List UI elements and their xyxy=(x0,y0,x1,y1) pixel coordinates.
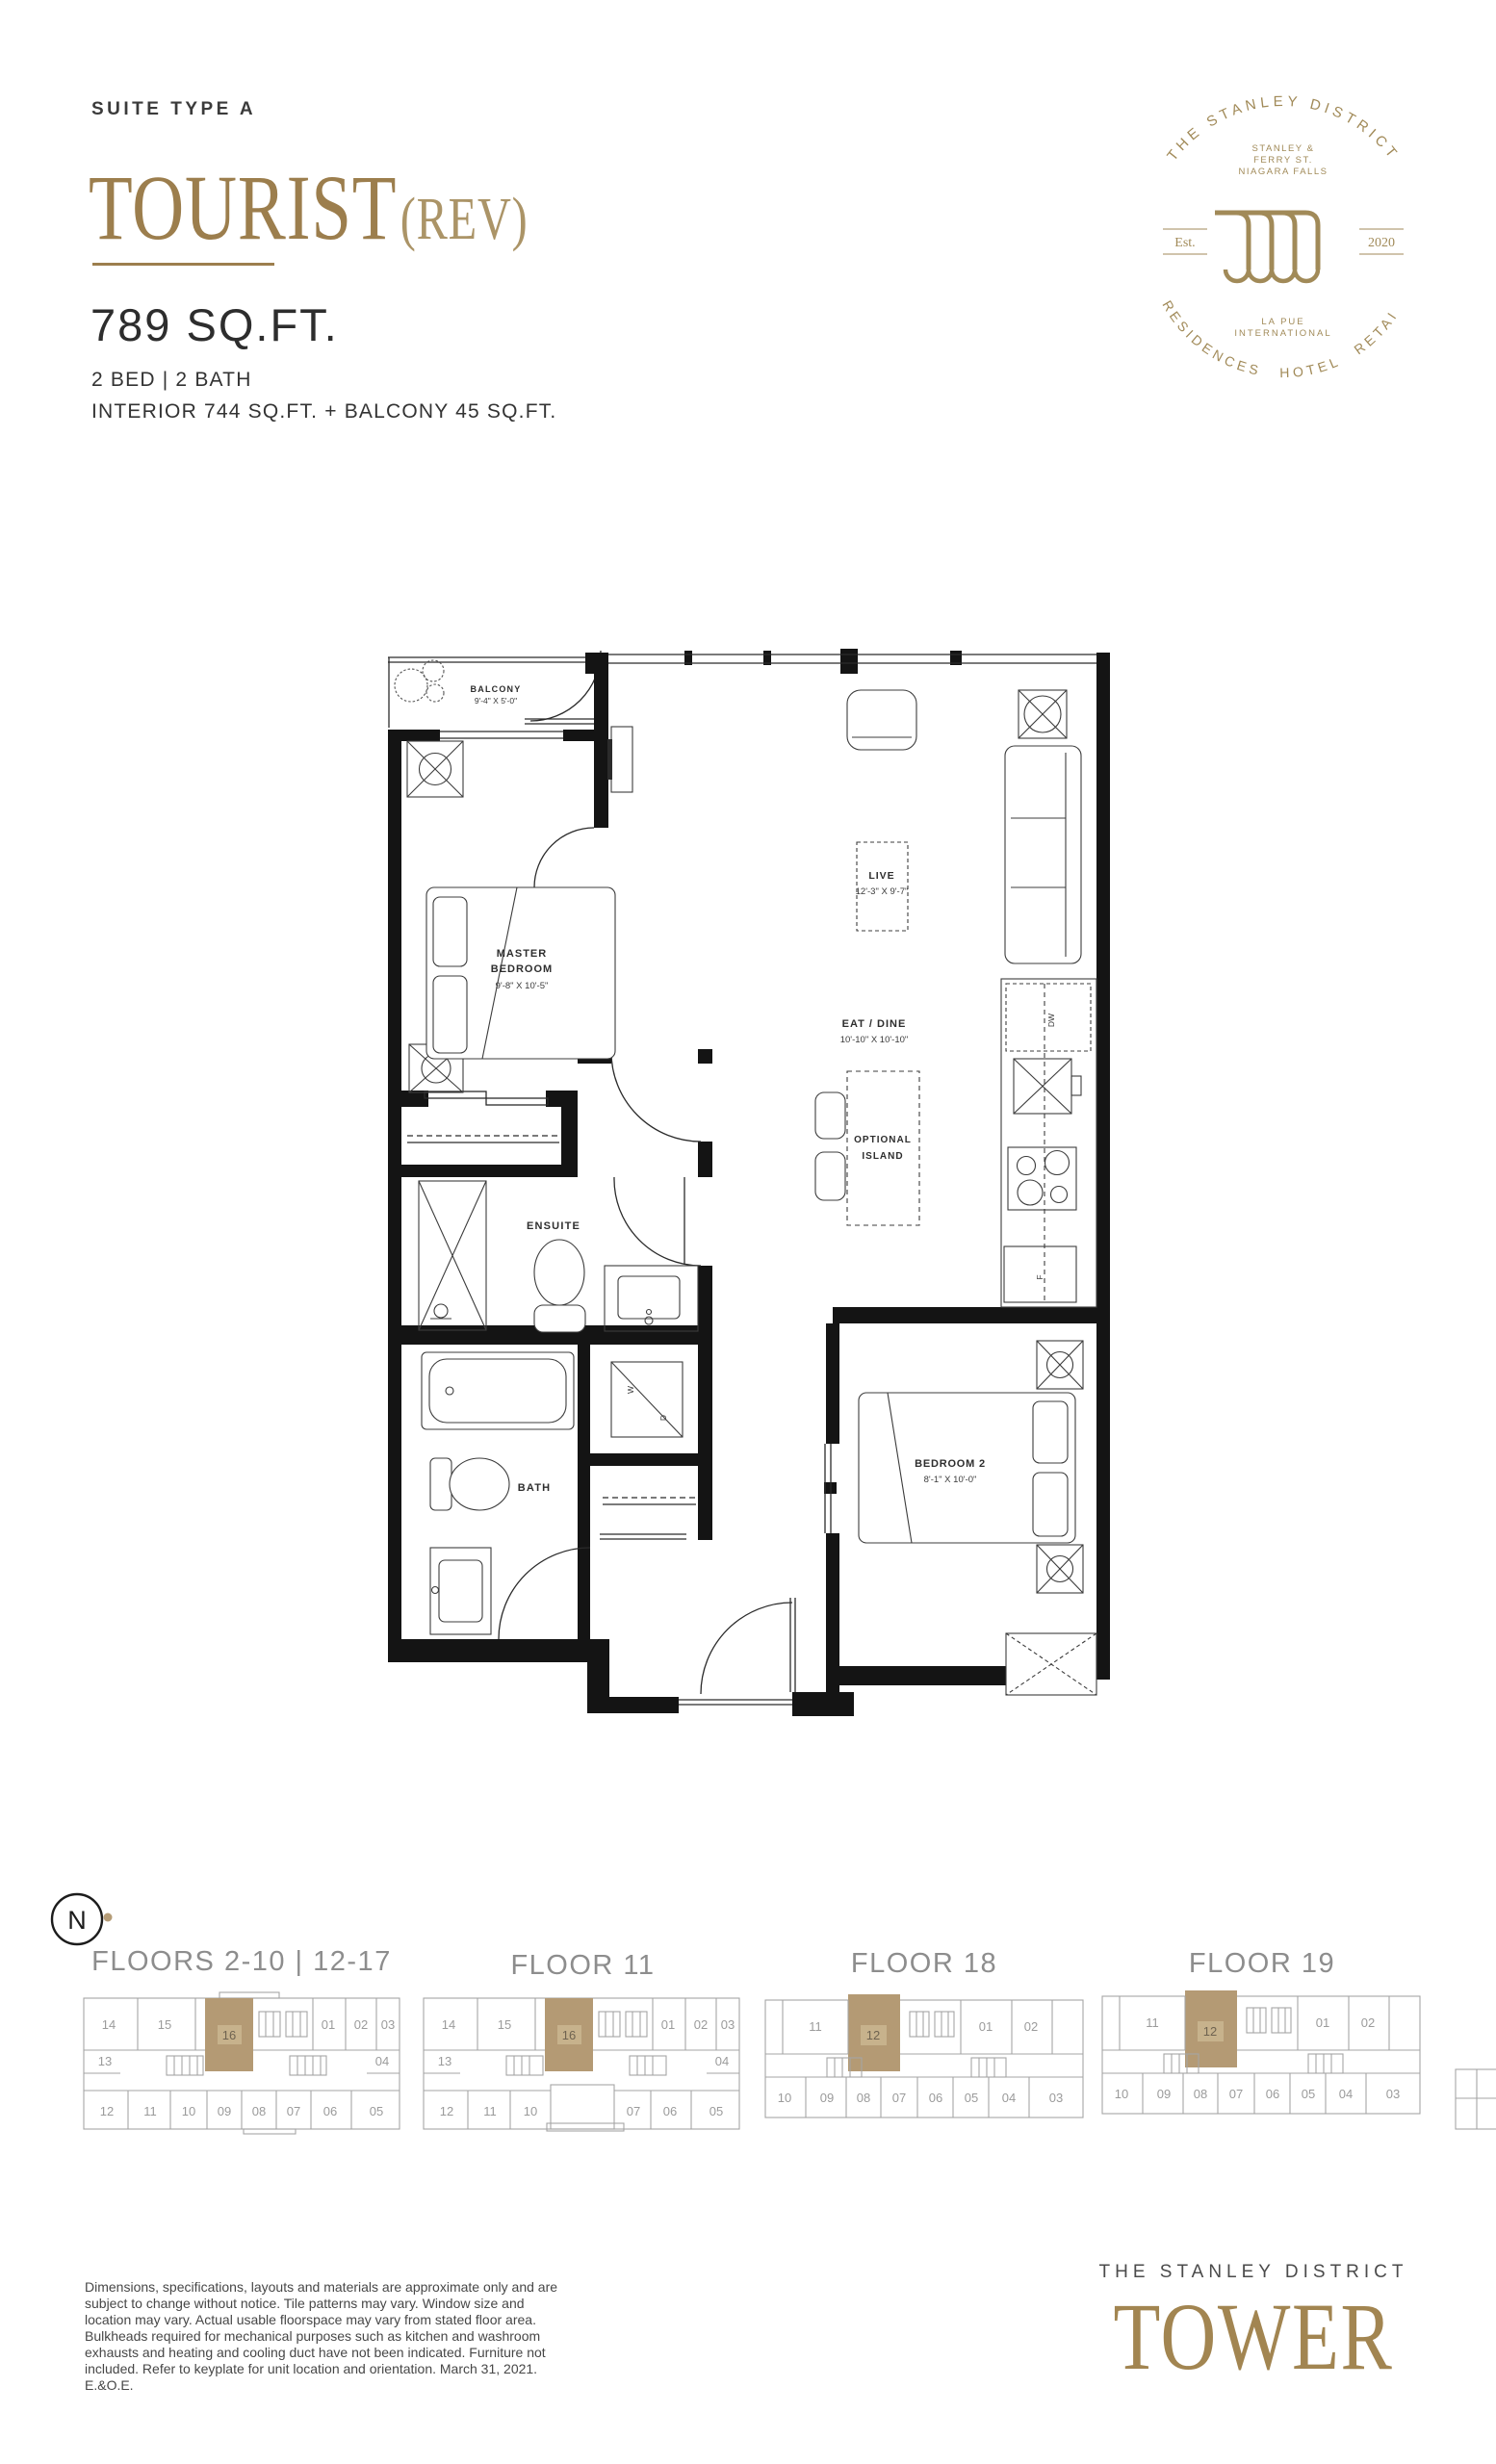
bedroom2-furniture xyxy=(859,1341,1096,1695)
suite-rev: (REV) xyxy=(400,187,529,252)
unit-label: 01 xyxy=(322,2017,335,2032)
logo-address-2: FERRY ST. xyxy=(1253,155,1313,166)
eat-dine-dim: 10'-10" X 10'-10" xyxy=(840,1035,909,1045)
stove xyxy=(1008,1147,1076,1210)
master-dim: 9'-8" X 10'-5" xyxy=(496,981,549,991)
gold-divider xyxy=(92,263,274,266)
unit-label: 03 xyxy=(381,2017,395,2032)
ensuite-label: ENSUITE xyxy=(527,1220,580,1232)
live-dim: 12'-3" X 9'-7" xyxy=(856,886,909,897)
unit-label: 08 xyxy=(252,2104,266,2118)
logo-brand-2: INTERNATIONAL xyxy=(1234,328,1331,339)
unit-label: 10 xyxy=(1115,2087,1128,2101)
unit-label: 04 xyxy=(375,2054,389,2068)
bathtub xyxy=(422,1352,574,1429)
unit-label: 12 xyxy=(100,2104,114,2118)
unit-label: 01 xyxy=(979,2019,993,2034)
unit-label: 02 xyxy=(354,2017,368,2032)
unit-label: 10 xyxy=(778,2091,791,2105)
unit-label: 15 xyxy=(158,2017,171,2032)
unit-label: 06 xyxy=(929,2091,942,2105)
armchair xyxy=(847,690,916,750)
dw-label: DW xyxy=(1046,1014,1056,1027)
footer-brand-top: THE STANLEY DISTRICT xyxy=(1051,2262,1456,2283)
toilet xyxy=(430,1458,451,1510)
unit-label: 05 xyxy=(1302,2087,1315,2101)
unit-label: 03 xyxy=(1049,2091,1063,2105)
unit-label: 12 xyxy=(440,2104,453,2118)
unit-label-highlight: 12 xyxy=(866,2028,880,2042)
keyplate-sliver xyxy=(1454,2067,1496,2131)
unit-label: 04 xyxy=(1002,2091,1016,2105)
unit-label: 08 xyxy=(1194,2087,1207,2101)
logo-year: 2020 xyxy=(1368,236,1395,250)
island-label: OPTIONAL xyxy=(854,1135,912,1145)
island-label2: ISLAND xyxy=(862,1151,903,1162)
fridge-label: F xyxy=(1035,1274,1045,1279)
unit-label: 06 xyxy=(323,2104,337,2118)
unit-label: 05 xyxy=(965,2091,978,2105)
unit-label: 14 xyxy=(442,2017,455,2032)
unit-label-highlight: 16 xyxy=(222,2028,236,2042)
unit-label: 11 xyxy=(143,2104,157,2118)
keyplate-floor-19: 11 12 01 02 10 09 08 07 06 05 04 03 xyxy=(1100,1981,1424,2130)
unit-label: 09 xyxy=(218,2104,231,2118)
logo-address-1: STANLEY & xyxy=(1252,143,1315,154)
brochure-page: SUITE TYPE A TOURIST (REV) 789 SQ.FT. 2 … xyxy=(0,0,1496,2464)
optional-island xyxy=(847,1071,919,1225)
unit-label: 02 xyxy=(1024,2019,1038,2034)
unit-label: 11 xyxy=(1146,2015,1159,2030)
unit-label: 07 xyxy=(287,2104,300,2118)
logo-est: Est. xyxy=(1174,236,1195,250)
bath-fixtures xyxy=(422,1352,683,1634)
footer-brand: THE STANLEY DISTRICT TOWER xyxy=(1051,2262,1456,2385)
logo-brand-1: LA PUE xyxy=(1261,317,1304,327)
unit-label: 02 xyxy=(694,2017,708,2032)
stool xyxy=(815,1152,845,1200)
windows xyxy=(440,654,1096,1705)
unit-label: 05 xyxy=(709,2104,723,2118)
ensuite-fixtures xyxy=(419,1181,698,1332)
unit-label: 15 xyxy=(498,2017,511,2032)
disclaimer-text: Dimensions, specifications, layouts and … xyxy=(85,2279,566,2395)
unit-label: 08 xyxy=(857,2091,870,2105)
master-label: MASTER xyxy=(497,948,547,960)
unit-label: 07 xyxy=(627,2104,640,2118)
unit-label: 01 xyxy=(661,2017,675,2032)
unit-label: 02 xyxy=(1361,2015,1375,2030)
unit-label: 14 xyxy=(102,2017,116,2032)
north-label: N xyxy=(67,1906,87,1935)
bedroom2-label: BEDROOM 2 xyxy=(915,1458,986,1470)
suite-name: TOURIST xyxy=(89,156,397,259)
unit-label-highlight: 16 xyxy=(562,2028,576,2042)
balcony-label: BALCONY xyxy=(471,684,522,694)
north-dot xyxy=(104,1913,113,1922)
kitchen xyxy=(1001,979,1096,1307)
bedroom2-dim: 8'-1" X 10'-0" xyxy=(924,1475,977,1485)
unit-label: 03 xyxy=(721,2017,735,2032)
unit-label: 03 xyxy=(1386,2087,1400,2101)
footer-brand-name: TOWER xyxy=(1092,2289,1415,2385)
unit-label: 06 xyxy=(1266,2087,1279,2101)
suite-type-label: SUITE TYPE A xyxy=(91,99,256,120)
live-label: LIVE xyxy=(868,870,894,882)
master-label2: BEDROOM xyxy=(491,963,553,975)
stool xyxy=(815,1092,845,1139)
stanley-district-logo: THE STANLEY DISTRICT RESIDENCES HOTEL RE… xyxy=(1136,82,1434,399)
waterfall-icon xyxy=(1215,213,1318,281)
unit-label: 07 xyxy=(1229,2087,1243,2101)
plant-icon xyxy=(395,660,444,702)
master-bedroom-furniture xyxy=(407,741,615,1092)
keyplate-floors-2-17: 14 15 16 01 02 03 13 04 12 11 10 09 08 0… xyxy=(82,1989,401,2135)
tv-console xyxy=(611,727,632,792)
keyplate-floor-11: 14 15 16 01 02 03 13 04 12 11 10 07 06 0… xyxy=(422,1989,741,2135)
bath-label: BATH xyxy=(518,1482,552,1494)
unit-label: 09 xyxy=(1157,2087,1171,2101)
dryer-label: D xyxy=(658,1415,668,1421)
logo-address-3: NIAGARA FALLS xyxy=(1239,167,1328,177)
keyplate-title-1: FLOORS 2-10 | 12-17 xyxy=(82,1946,401,1978)
unit-label: 13 xyxy=(438,2054,451,2068)
living-furniture xyxy=(607,690,1081,1225)
bed-bath-label: 2 BED | 2 BATH xyxy=(91,369,252,392)
washer-label: W xyxy=(626,1386,635,1394)
keyplate-title-2: FLOOR 11 xyxy=(422,1950,744,1982)
interior-balcony-label: INTERIOR 744 SQ.FT. + BALCONY 45 SQ.FT. xyxy=(91,400,556,423)
unit-label: 07 xyxy=(892,2091,906,2105)
keyplate-floor-18: 11 12 01 02 10 09 08 07 06 05 04 03 xyxy=(763,1985,1087,2131)
unit-label: 10 xyxy=(182,2104,195,2118)
unit-label: 06 xyxy=(663,2104,677,2118)
toilet xyxy=(534,1240,584,1305)
unit-label: 04 xyxy=(1339,2087,1353,2101)
suite-title: TOURIST (REV) xyxy=(89,162,529,254)
balcony-dim: 9'-4" X 5'-0" xyxy=(475,696,517,706)
unit-label: 11 xyxy=(483,2104,497,2118)
unit-label: 04 xyxy=(715,2054,729,2068)
keyplate-title-3: FLOOR 18 xyxy=(763,1948,1085,1980)
eat-dine-label: EAT / DINE xyxy=(842,1018,907,1030)
suite-area: 789 SQ.FT. xyxy=(90,298,339,351)
fridge xyxy=(1004,1246,1076,1302)
unit-label: 13 xyxy=(98,2054,112,2068)
keyplate-title-4: FLOOR 19 xyxy=(1100,1948,1424,1980)
unit-label-highlight: 12 xyxy=(1203,2024,1217,2039)
unit-label: 09 xyxy=(820,2091,834,2105)
unit-label: 10 xyxy=(524,2104,537,2118)
floor-plan: BALCONY 9'-4" X 5'-0" MASTER BEDROOM 9'-… xyxy=(380,645,1131,1742)
unit-label: 11 xyxy=(809,2019,822,2034)
unit-label: 01 xyxy=(1316,2015,1329,2030)
sofa xyxy=(1005,746,1081,963)
unit-label: 05 xyxy=(370,2104,383,2118)
